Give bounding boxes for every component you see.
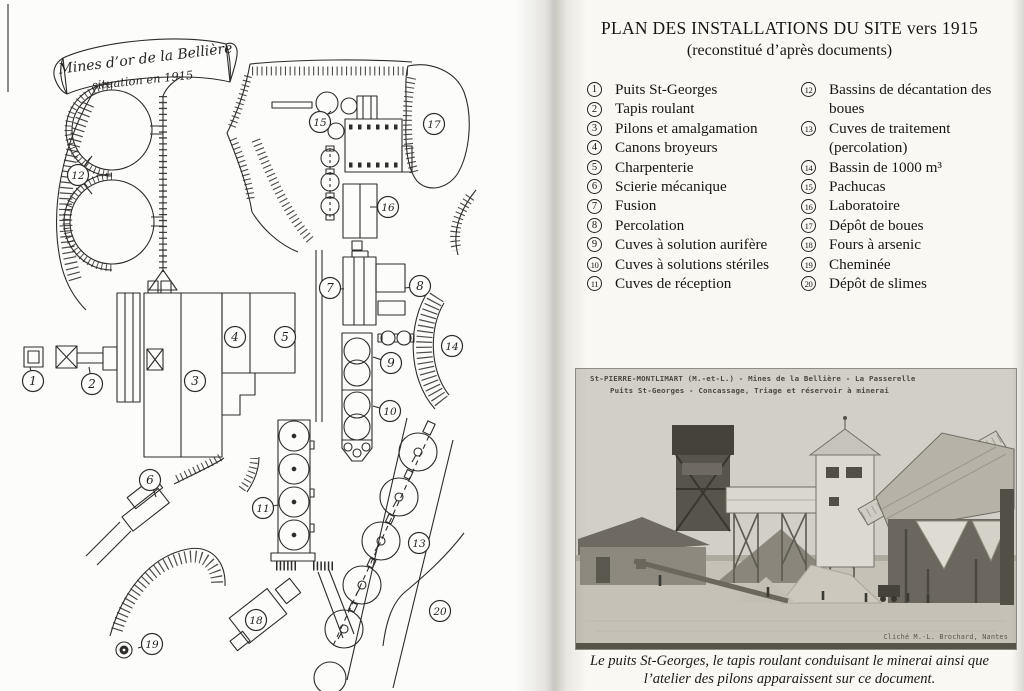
legend-item-label: Percolation	[615, 217, 684, 234]
map-marker-6: 6	[140, 470, 161, 498]
photo-caption-line1: St-PIERRE-MONTLIMART (M.-et-L.) - Mines …	[576, 374, 1024, 383]
map-marker-7: 7	[320, 278, 345, 299]
legend-item-number: 8	[587, 218, 602, 233]
page-caption: Le puits St-Georges, le tapis roulant co…	[555, 653, 1024, 688]
legend-column-right: 12 Bassins de décantation des boues 13 C…	[801, 80, 1021, 293]
legend-item-label: Canons broyeurs	[615, 139, 718, 156]
legend-item-number: 2	[587, 102, 602, 117]
legend-item-label: Cuves de réception	[615, 275, 731, 292]
map-marker-10: 10	[373, 401, 401, 422]
map-marker-20: 20	[430, 601, 451, 622]
map-marker-16: 16	[370, 197, 399, 218]
svg-text:8: 8	[416, 279, 424, 293]
legend-item: 17 Dépôt de boues	[801, 216, 1021, 235]
map-marker-5: 5	[275, 327, 296, 348]
shaft-and-conveyor	[24, 346, 117, 370]
map-marker-4: 4	[225, 327, 246, 348]
treatment-vats-railway	[314, 418, 464, 691]
legend-column-left: 1 Puits St-Georges 2 Tapis roulant 3 Pil…	[587, 80, 800, 293]
legend-item-number: 9	[587, 237, 602, 252]
svg-text:9: 9	[387, 356, 395, 370]
legend-item-label: Dépôt de boues	[829, 217, 923, 234]
map-marker-2: 2	[82, 367, 103, 395]
svg-text:20: 20	[432, 606, 447, 618]
fusion-building	[343, 251, 405, 325]
crusher-building	[345, 96, 412, 172]
solution-vats	[342, 333, 372, 461]
svg-text:16: 16	[381, 202, 395, 214]
chimney	[116, 642, 132, 658]
legend-item: 3 Pilons et amalgamation	[587, 119, 800, 138]
map-marker-19: 19	[138, 634, 163, 655]
map-marker-13: 13	[409, 533, 430, 554]
svg-text:5: 5	[281, 330, 289, 344]
photo-credit: Cliché M.-L. Brochard, Nantes	[884, 633, 1008, 641]
legend-item-label: Puits St-Georges	[615, 81, 717, 98]
south-embankment	[110, 457, 259, 636]
legend-item-label: Cuves de traitement (percolation)	[829, 120, 950, 156]
svg-text:14: 14	[445, 341, 458, 353]
legend-item-label: Dépôt de slimes	[829, 275, 927, 292]
railway-ladder	[149, 96, 177, 290]
svg-text:15: 15	[313, 117, 327, 129]
legend-item-number: 19	[801, 257, 816, 272]
legend-item-label: Laboratoire	[829, 197, 900, 214]
legend-item-label: Cuves à solution aurifère	[615, 236, 767, 253]
site-plan-map: Mines d’or de la Bellière situation en 1…	[0, 0, 555, 691]
plan-title: PLAN DES INSTALLATIONS DU SITE vers 1915	[555, 18, 1024, 39]
legend-item-number: 18	[801, 237, 816, 252]
legend-item-label: Pachucas	[829, 178, 886, 195]
svg-text:19: 19	[145, 639, 159, 651]
legend-item-number: 4	[587, 140, 602, 155]
svg-text:13: 13	[412, 538, 426, 550]
legend-item: 16 Laboratoire	[801, 196, 1021, 215]
svg-text:17: 17	[427, 119, 441, 131]
legend-item-label: Cheminée	[829, 256, 891, 273]
legend-item-number: 15	[801, 179, 816, 194]
photo-illustration	[576, 369, 1016, 649]
photo-caption-line2: Puits St-Georges - Concassage, Triage et…	[576, 386, 1024, 395]
map-marker-18: 18	[246, 610, 267, 631]
legend-item-label: Charpenterie	[615, 159, 693, 176]
legend-item-label: Fusion	[615, 197, 656, 214]
legend-item: 1 Puits St-Georges	[587, 80, 800, 99]
historic-photo: St-PIERRE-MONTLIMART (M.-et-L.) - Mines …	[575, 368, 1017, 650]
legend-item: 12 Bassins de décantation des boues	[801, 80, 1021, 119]
legend-item-label: Scierie mécanique	[615, 178, 727, 195]
reception-vats	[271, 420, 354, 638]
legend-item-label: Fours à arsenic	[829, 236, 921, 253]
legend-item: 11 Cuves de réception	[587, 274, 800, 293]
map-marker-1: 1	[23, 367, 44, 392]
legend-item-number: 7	[587, 199, 602, 214]
legend-item-number: 20	[801, 276, 816, 291]
legend-item-number: 1	[587, 82, 602, 97]
legend-item-label: Bassin de 1000 m³	[829, 159, 942, 176]
map-marker-3: 3	[185, 371, 206, 392]
svg-text:10: 10	[383, 406, 397, 418]
legend-list-right: 12 Bassins de décantation des boues 13 C…	[801, 80, 1021, 293]
map-marker-14: 14	[442, 336, 463, 357]
legend-item: 4 Canons broyeurs	[587, 138, 800, 157]
map-markers: 1234567891011121314151617181920	[23, 111, 463, 655]
svg-text:6: 6	[146, 473, 154, 487]
legend-item: 18 Fours à arsenic	[801, 235, 1021, 254]
mill-buildings	[117, 250, 322, 457]
legend-item-number: 5	[587, 160, 602, 175]
svg-text:18: 18	[249, 615, 263, 627]
legend-item-label: Bassins de décantation des boues	[829, 81, 991, 117]
legend-item: 9 Cuves à solution aurifère	[587, 235, 800, 254]
legend-item-number: 10	[587, 257, 602, 272]
svg-text:7: 7	[326, 281, 334, 295]
svg-text:4: 4	[230, 330, 239, 344]
pachucas-vats	[321, 146, 339, 220]
east-embankment	[455, 190, 476, 255]
legend-item: 7 Fusion	[587, 196, 800, 215]
legend-item-number: 14	[801, 160, 816, 175]
upper-enclosure	[227, 60, 412, 252]
page-title: PLAN DES INSTALLATIONS DU SITE vers 1915…	[555, 18, 1024, 60]
map-marker-9: 9	[373, 353, 402, 374]
svg-text:3: 3	[191, 374, 199, 388]
legend-item-number: 12	[801, 82, 816, 97]
legend-item-label: Tapis roulant	[615, 100, 695, 117]
legend-item: 6 Scierie mécanique	[587, 177, 800, 196]
map-marker-17: 17	[424, 114, 445, 135]
scanned-brochure-page: Mines d’or de la Bellière situation en 1…	[0, 0, 1024, 691]
legend-item-label: Cuves à solutions stériles	[615, 256, 769, 273]
legend-page: PLAN DES INSTALLATIONS DU SITE vers 1915…	[555, 0, 1024, 691]
legend-item: 5 Charpenterie	[587, 158, 800, 177]
photo-headframe	[672, 425, 734, 531]
legend-item-number: 3	[587, 121, 602, 136]
title-banner: Mines d’or de la Bellière situation en 1…	[54, 39, 237, 94]
legend-item: 10 Cuves à solutions stériles	[587, 255, 800, 274]
legend-item-number: 17	[801, 218, 816, 233]
legend-item: 15 Pachucas	[801, 177, 1021, 196]
sawmill	[86, 477, 172, 565]
legend-item-number: 16	[801, 199, 816, 214]
map-marker-15: 15	[310, 111, 332, 133]
legend-item-number: 6	[587, 179, 602, 194]
legend-item-number: 13	[801, 121, 816, 136]
legend-list-left: 1 Puits St-Georges 2 Tapis roulant 3 Pil…	[587, 80, 800, 293]
legend-item: 14 Bassin de 1000 m³	[801, 158, 1021, 177]
agitator-machine	[378, 331, 414, 345]
svg-text:12: 12	[71, 170, 85, 182]
legend-item-number: 11	[587, 276, 602, 291]
svg-text:1: 1	[29, 374, 37, 388]
legend-item: 13 Cuves de traitement (percolation)	[801, 119, 1021, 158]
map-marker-8: 8	[405, 276, 431, 297]
plan-page: Mines d’or de la Bellière situation en 1…	[0, 0, 555, 691]
svg-text:11: 11	[256, 503, 269, 515]
legend-item: 2 Tapis roulant	[587, 99, 800, 118]
caption-line1: Le puits St-Georges, le tapis roulant co…	[555, 653, 1024, 671]
map-marker-11: 11	[253, 498, 279, 519]
legend-item: 20 Dépôt de slimes	[801, 274, 1021, 293]
legend-item: 8 Percolation	[587, 216, 800, 235]
laboratory-building	[343, 184, 377, 250]
legend-item-label: Pilons et amalgamation	[615, 120, 758, 137]
caption-line2: l’atelier des pilons apparaissent sur ce…	[555, 671, 1024, 689]
plan-subtitle: (reconstitué d’après documents)	[555, 42, 1024, 60]
legend-item: 19 Cheminée	[801, 255, 1021, 274]
svg-text:2: 2	[87, 377, 96, 391]
